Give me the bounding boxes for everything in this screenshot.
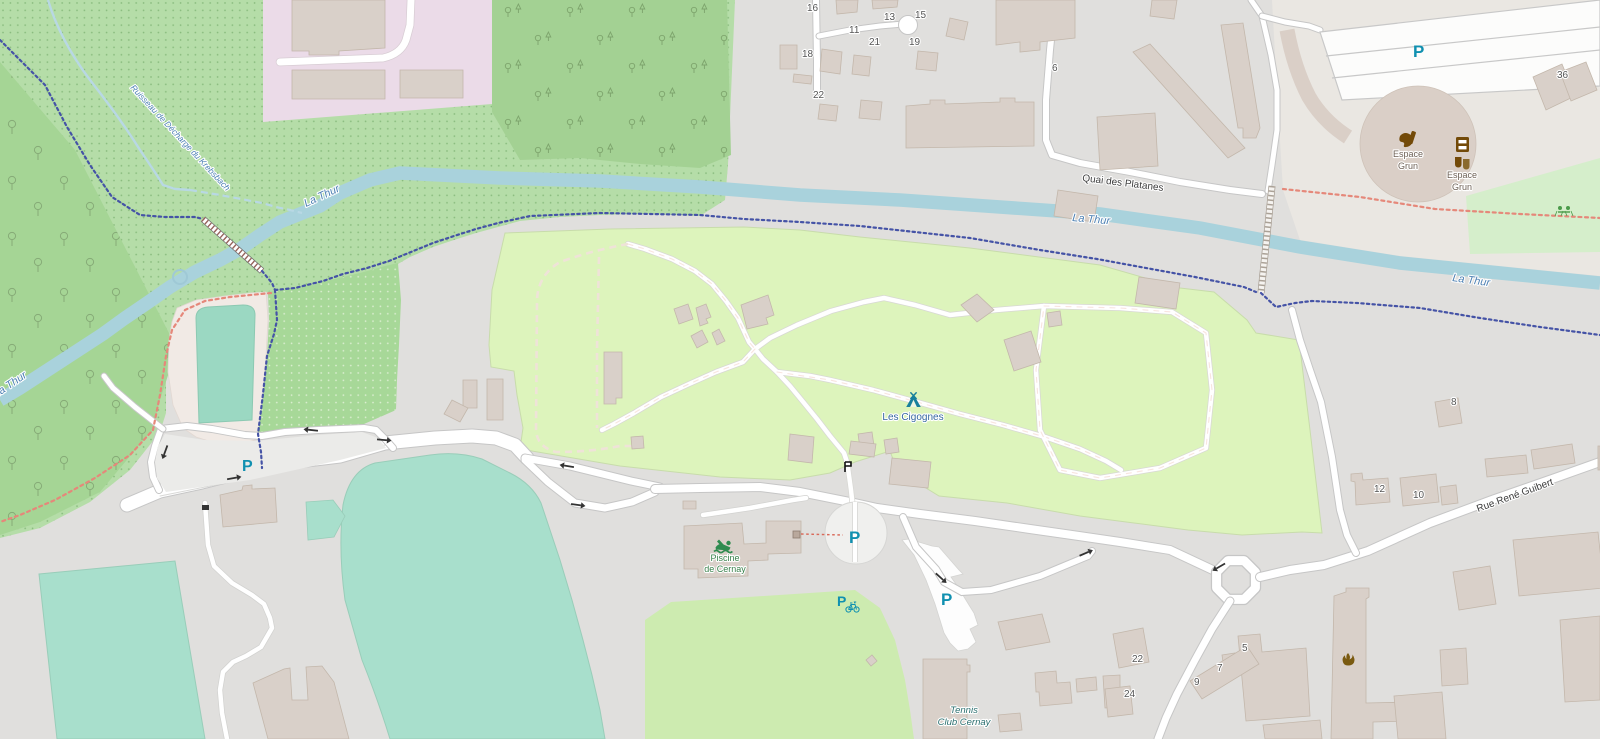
svg-text:7: 7 (1217, 663, 1223, 674)
svg-text:de Cernay: de Cernay (704, 564, 746, 574)
svg-text:24: 24 (1124, 689, 1136, 700)
svg-text:22: 22 (1132, 654, 1144, 665)
svg-text:10: 10 (1413, 490, 1425, 501)
svg-text:Les Cigognes: Les Cigognes (882, 412, 943, 423)
svg-text:Tennis: Tennis (950, 705, 978, 716)
svg-text:Piscine: Piscine (710, 553, 739, 563)
svg-text:21: 21 (869, 37, 881, 48)
svg-text:11: 11 (849, 25, 860, 36)
svg-text:9: 9 (1194, 677, 1200, 688)
svg-text:13: 13 (884, 12, 896, 23)
svg-text:Club Cernay: Club Cernay (938, 717, 992, 728)
svg-text:15: 15 (915, 10, 927, 21)
svg-text:Espace: Espace (1393, 149, 1423, 159)
svg-text:P: P (837, 593, 846, 609)
svg-text:Espace: Espace (1447, 170, 1477, 180)
svg-text:18: 18 (802, 49, 814, 60)
svg-text:12: 12 (1374, 484, 1386, 495)
svg-text:5: 5 (1242, 643, 1248, 654)
svg-text:36: 36 (1557, 70, 1569, 81)
svg-text:P: P (242, 458, 253, 475)
svg-text:Grun: Grun (1452, 182, 1472, 192)
svg-text:19: 19 (909, 37, 921, 48)
svg-text:22: 22 (813, 90, 825, 101)
svg-text:P: P (1413, 42, 1424, 61)
svg-text:P: P (849, 528, 860, 547)
svg-text:8: 8 (1451, 397, 1457, 408)
svg-text:Grun: Grun (1398, 161, 1418, 171)
svg-text:16: 16 (807, 3, 819, 14)
svg-text:6: 6 (1052, 63, 1058, 74)
svg-text:P: P (941, 590, 952, 609)
